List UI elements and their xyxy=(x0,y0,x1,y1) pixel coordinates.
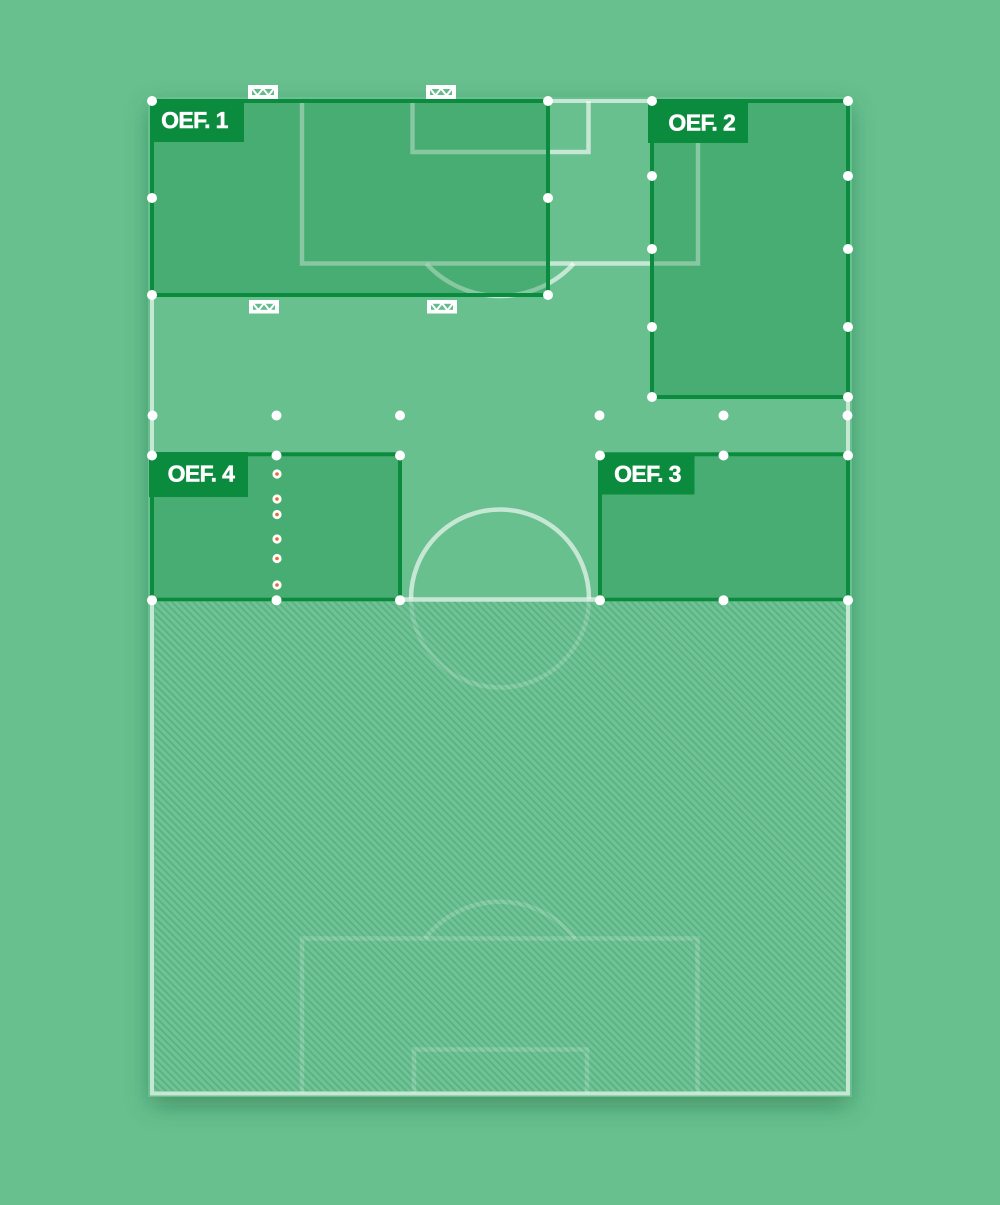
svg-text:OEF. 1: OEF. 1 xyxy=(161,107,229,133)
svg-text:OEF. 3: OEF. 3 xyxy=(614,461,681,487)
svg-text:OEF. 2: OEF. 2 xyxy=(668,109,735,135)
svg-text:OEF. 4: OEF. 4 xyxy=(168,460,236,486)
